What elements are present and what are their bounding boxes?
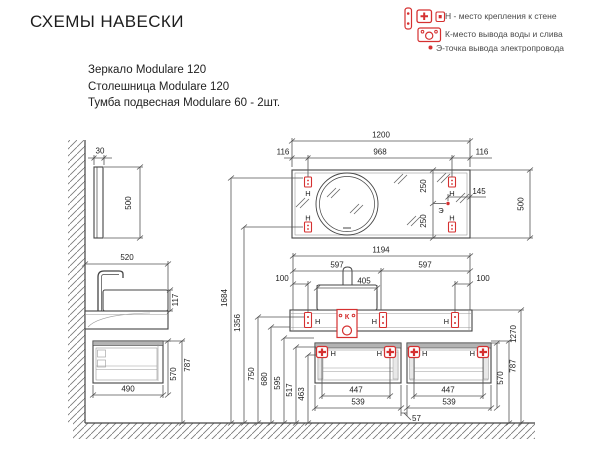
cabinet-h-label-1: Н (331, 349, 336, 358)
countertop-h-label-mid: Н (372, 317, 377, 326)
svg-text:1194: 1194 (372, 246, 390, 255)
dim-mirror-height-front: 500 (470, 168, 533, 241)
svg-text:100: 100 (476, 274, 490, 283)
countertop-side-view (85, 311, 168, 329)
svg-text:595: 595 (273, 376, 282, 390)
svg-text:1200: 1200 (372, 131, 390, 140)
dim-cabinet-gap: 57 (401, 413, 421, 423)
svg-text:517: 517 (285, 383, 294, 397)
countertop-h-label-left: Н (315, 317, 320, 326)
electric-point-label: Э (438, 206, 444, 215)
mirror-side-view (94, 167, 103, 238)
svg-text:539: 539 (351, 398, 365, 407)
dim-cabinet-height-right: 570 (491, 341, 505, 411)
svg-text:570: 570 (169, 367, 178, 381)
svg-text:447: 447 (441, 386, 455, 395)
svg-text:539: 539 (442, 398, 456, 407)
mirror-h-label-tl: Н (305, 189, 310, 198)
svg-text:145: 145 (472, 187, 486, 196)
svg-text:100: 100 (275, 274, 289, 283)
dim-height-cabinet-mount-upper: 517 (285, 345, 316, 426)
svg-text:787: 787 (509, 359, 518, 373)
svg-text:570: 570 (496, 371, 505, 385)
cabinet-h-label-3: Н (422, 349, 427, 358)
dim-basin-height: 117 (167, 288, 180, 314)
svg-text:447: 447 (349, 386, 363, 395)
cabinets-front-view: Н Н Н Н (315, 343, 491, 383)
svg-text:968: 968 (373, 148, 387, 157)
svg-text:750: 750 (247, 367, 256, 381)
water-outlet-label: К (345, 312, 350, 321)
cabinet-h-label-4: Н (470, 349, 475, 358)
svg-text:597: 597 (330, 261, 344, 270)
mounting-scheme-page: СХЕМЫ НАВЕСКИ Зеркало Modulare 120 Столе… (0, 0, 600, 459)
mounting-scheme-drawing: Н Н Н Н Э Н (0, 0, 600, 459)
cabinet-h-label-2: Н (377, 349, 382, 358)
svg-text:117: 117 (171, 293, 180, 306)
dim-height-countertop-bottom: 680 (260, 325, 290, 426)
mirror-h-label-bl: Н (305, 214, 310, 223)
dim-mirror-height-side: 500 (104, 165, 143, 241)
svg-text:57: 57 (412, 414, 421, 423)
svg-text:680: 680 (260, 372, 269, 386)
cabinet-side-view (93, 341, 163, 383)
svg-text:463: 463 (297, 387, 306, 401)
dim-height-cabinet-mount-lower: 463 (297, 353, 316, 426)
svg-text:500: 500 (517, 197, 526, 211)
floor (73, 423, 535, 439)
svg-text:116: 116 (476, 148, 489, 157)
mirror-h-label-br: Н (449, 214, 454, 223)
dim-cabinet-top-side: 787 (163, 339, 192, 426)
svg-text:597: 597 (418, 261, 432, 270)
svg-text:1684: 1684 (220, 289, 229, 307)
dim-cabinet-depth: 490 (90, 385, 166, 399)
dim-mount-offset-right: 100 (452, 274, 490, 312)
basin-side-view (103, 290, 168, 311)
svg-text:1356: 1356 (233, 314, 242, 332)
svg-text:405: 405 (357, 277, 371, 286)
water-outlet-marker: К (337, 310, 357, 338)
faucet-front-view (341, 267, 354, 285)
svg-text:490: 490 (121, 385, 135, 394)
countertop-h-label-right: Н (444, 317, 449, 326)
svg-text:520: 520 (120, 253, 134, 262)
wall (68, 140, 85, 423)
dim-cabinet-height-side: 570 (163, 339, 178, 398)
mirror-front-view: Н Н Н Н Э (292, 170, 470, 238)
svg-text:116: 116 (277, 148, 290, 157)
svg-text:250: 250 (419, 214, 428, 228)
svg-text:250: 250 (419, 179, 428, 193)
svg-text:500: 500 (124, 196, 133, 210)
svg-text:787: 787 (183, 358, 192, 372)
dim-mirror-thickness: 30 (88, 147, 112, 166)
svg-text:30: 30 (96, 147, 105, 156)
